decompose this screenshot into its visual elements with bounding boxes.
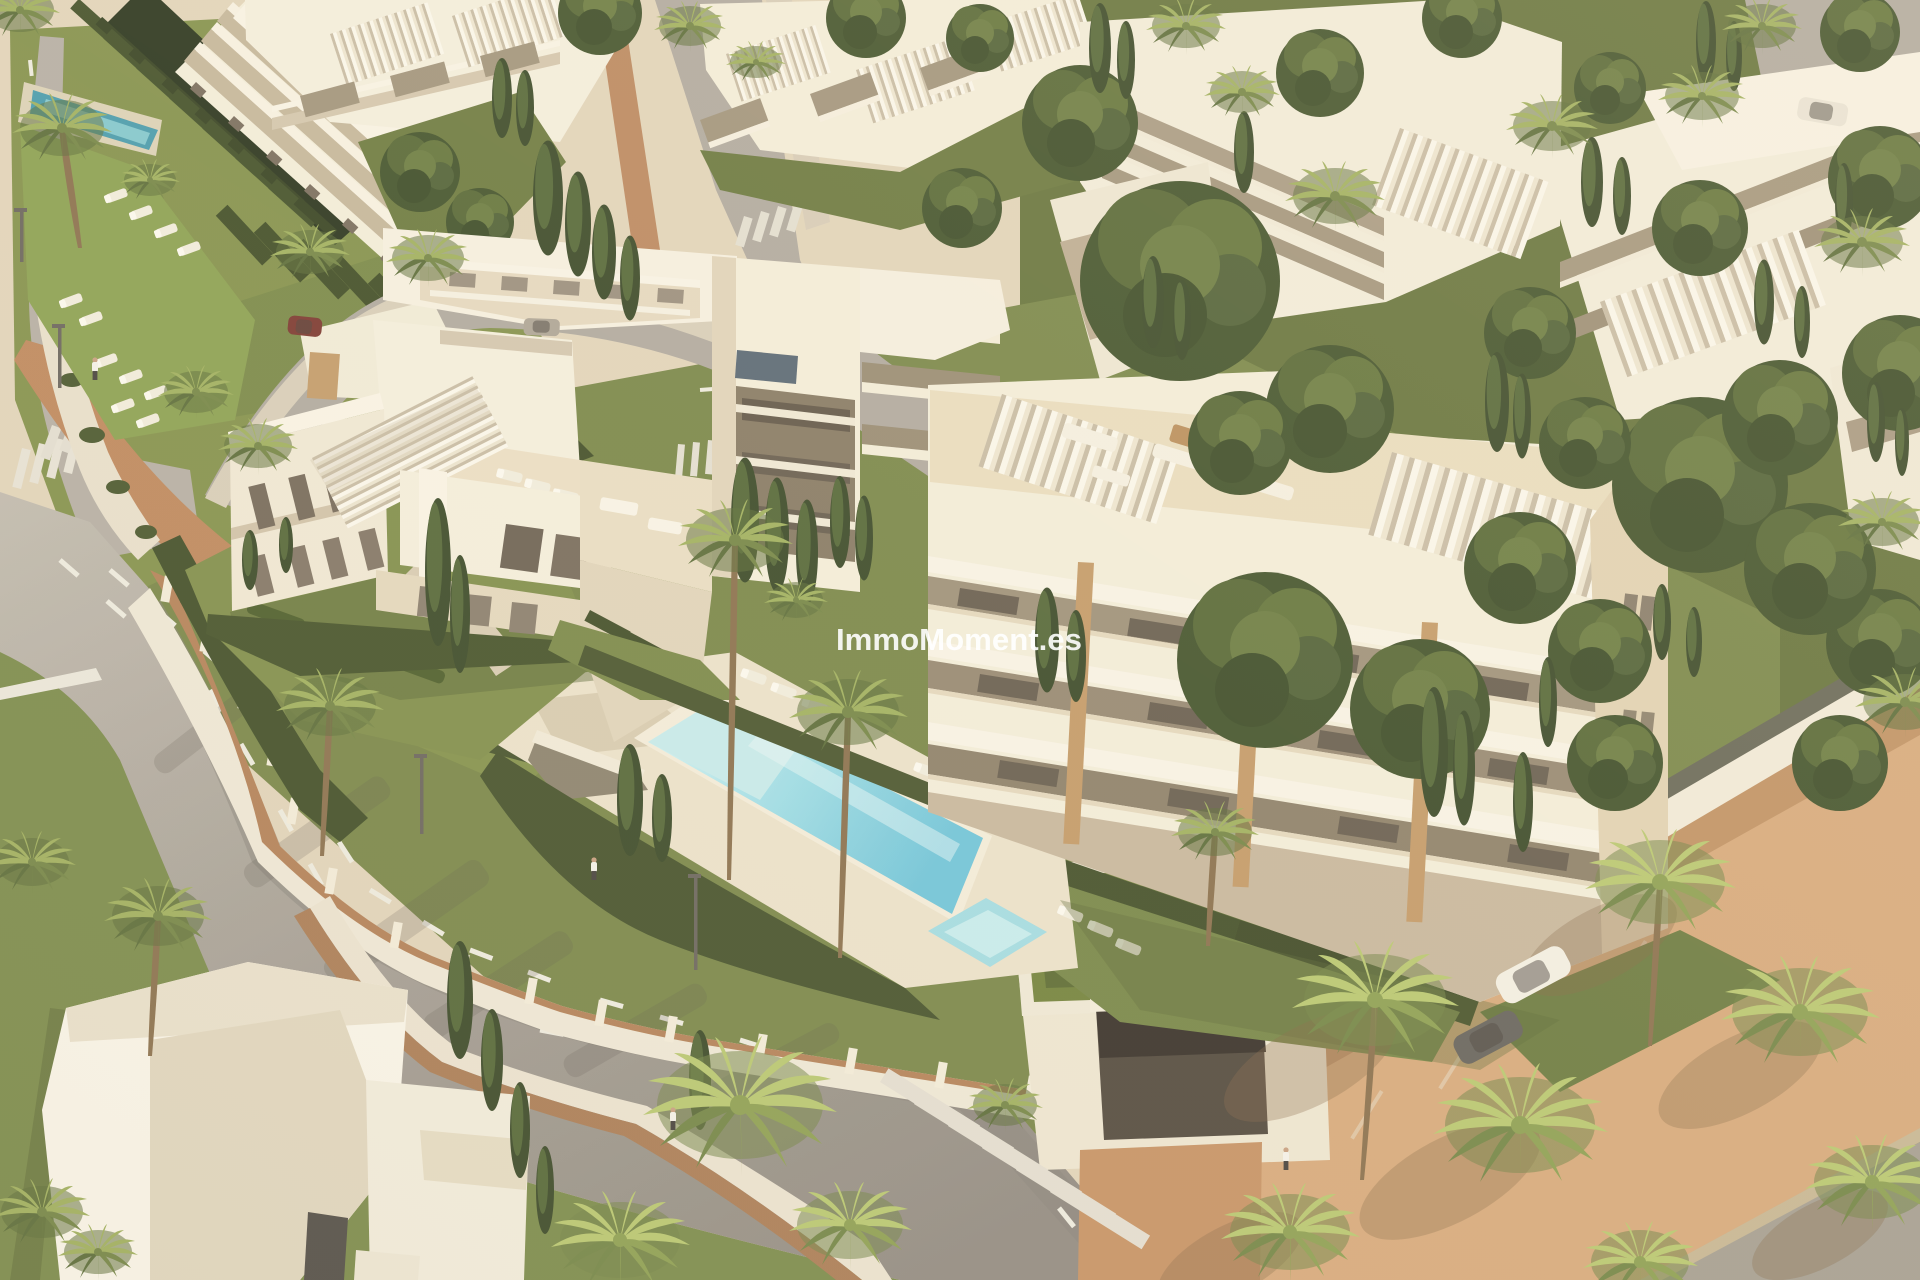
svg-text:ImmoMoment.es: ImmoMoment.es (836, 622, 1082, 657)
